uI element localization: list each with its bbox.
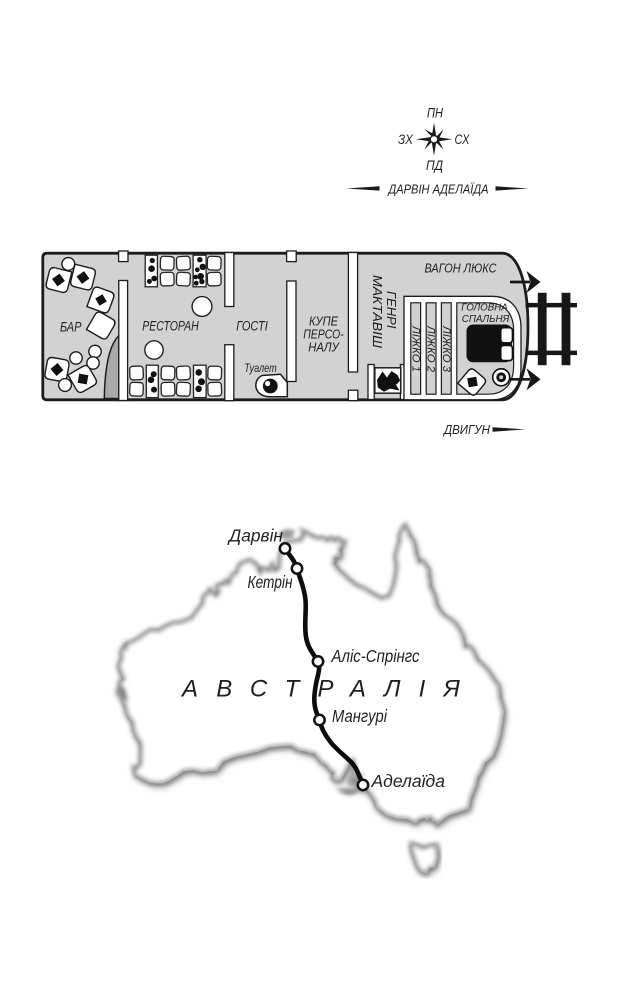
svg-text:БАР: БАР (60, 320, 82, 335)
svg-text:Аделаїда: Аделаїда (370, 771, 445, 791)
svg-text:ВАГОН ЛЮКС: ВАГОН ЛЮКС (425, 261, 498, 276)
svg-text:ЛІЖКО 3: ЛІЖКО 3 (440, 325, 452, 372)
svg-text:Дарвін: Дарвін (227, 526, 283, 546)
svg-text:ЛІЖКО 2: ЛІЖКО 2 (425, 325, 437, 372)
svg-text:ДАРВІН АДЕЛАЇДА: ДАРВІН АДЕЛАЇДА (387, 183, 489, 197)
svg-text:ГОЛОВНА: ГОЛОВНА (461, 302, 508, 313)
svg-text:НАЛУ: НАЛУ (308, 340, 340, 355)
svg-text:ПД: ПД (426, 158, 443, 173)
svg-text:СХ: СХ (455, 132, 471, 147)
svg-text:ЛІЖКО 1: ЛІЖКО 1 (409, 325, 421, 372)
svg-text:ДВИГУН: ДВИГУН (442, 422, 490, 437)
svg-text:РЕСТОРАН: РЕСТОРАН (142, 319, 199, 334)
svg-text:ПН: ПН (427, 106, 443, 121)
svg-text:ЗХ: ЗХ (398, 132, 414, 147)
svg-text:Туалет: Туалет (244, 361, 277, 375)
svg-text:СПАЛЬНЯ: СПАЛЬНЯ (462, 314, 510, 325)
svg-text:Мангурі: Мангурі (332, 706, 388, 726)
svg-text:Кетрін: Кетрін (248, 572, 293, 592)
svg-text:АВСТРАЛІЯ: АВСТРАЛІЯ (180, 676, 478, 703)
svg-text:Аліс-Спрінгс: Аліс-Спрінгс (331, 646, 420, 666)
svg-text:ГОСТІ: ГОСТІ (236, 319, 268, 334)
